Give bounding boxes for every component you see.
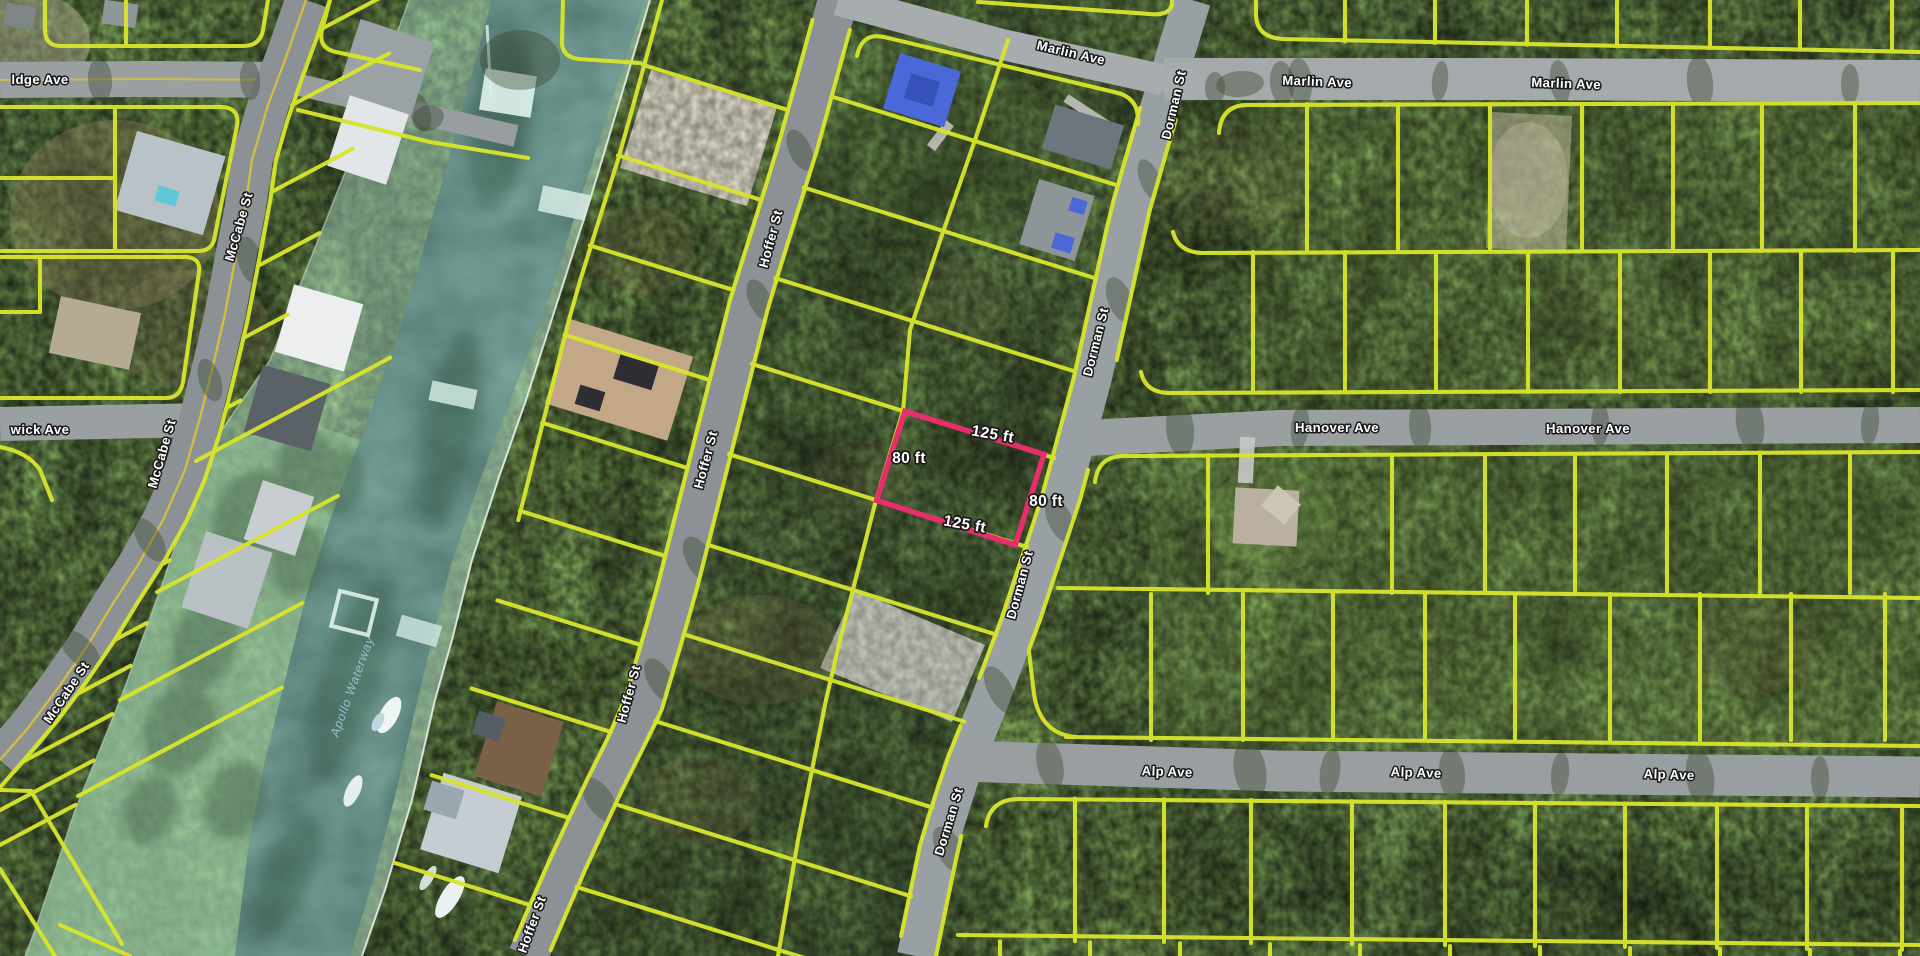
svg-text:Hanover Ave: Hanover Ave bbox=[1295, 420, 1379, 435]
svg-text:Marlin Ave: Marlin Ave bbox=[1282, 73, 1352, 90]
svg-text:Hanover Ave: Hanover Ave bbox=[1546, 421, 1630, 436]
svg-text:80 ft: 80 ft bbox=[892, 450, 926, 467]
svg-text:Marlin Ave: Marlin Ave bbox=[1531, 75, 1601, 92]
svg-text:Alp Ave: Alp Ave bbox=[1643, 766, 1694, 783]
svg-text:80 ft: 80 ft bbox=[1029, 493, 1063, 510]
svg-text:Alp Ave: Alp Ave bbox=[1141, 763, 1192, 780]
svg-text:ldge Ave: ldge Ave bbox=[11, 72, 68, 87]
svg-text:Alp Ave: Alp Ave bbox=[1390, 764, 1441, 781]
svg-text:wick Ave: wick Ave bbox=[10, 422, 70, 437]
